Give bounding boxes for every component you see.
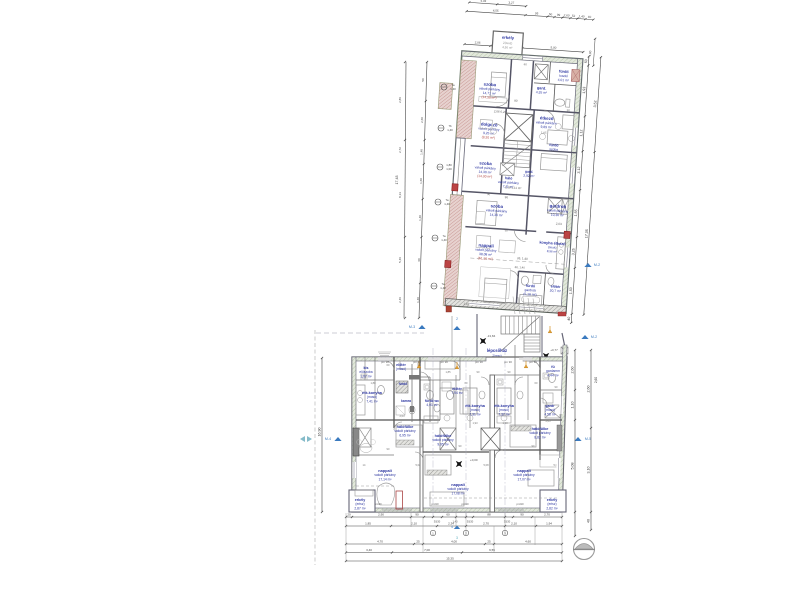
svg-text:pm 90: pm 90 <box>440 360 448 364</box>
svg-text:1,60: 1,60 <box>419 178 423 184</box>
svg-text:1,40: 1,40 <box>447 128 453 132</box>
svg-text:1,40: 1,40 <box>441 238 447 242</box>
svg-text:+0,77: +0,77 <box>550 348 558 352</box>
svg-text:pm90: pm90 <box>375 502 382 506</box>
svg-text:15,35: 15,35 <box>446 557 454 561</box>
svg-text:pm 90: pm 90 <box>475 360 483 364</box>
svg-text:3,27: 3,27 <box>508 0 514 4</box>
svg-text:20,7 m²: 20,7 m² <box>550 289 562 294</box>
svg-text:60: 60 <box>417 258 421 262</box>
svg-text:9,89 m²: 9,89 m² <box>540 125 552 130</box>
svg-text:4,50 m²: 4,50 m² <box>502 45 512 50</box>
svg-text:90: 90 <box>505 195 509 199</box>
svg-text:30|30: 30|30 <box>467 520 474 524</box>
svg-text:52: 52 <box>572 14 576 18</box>
svg-text:4,03: 4,03 <box>480 0 486 3</box>
svg-text:4,00: 4,00 <box>451 540 457 544</box>
svg-text:2,60: 2,60 <box>594 377 598 383</box>
svg-text:5,08: 5,08 <box>483 463 489 467</box>
svg-text:1,85: 1,85 <box>365 522 371 526</box>
svg-text:2,92 m²: 2,92 m² <box>523 174 535 179</box>
svg-text:90: 90 <box>520 513 524 517</box>
svg-text:1,87 m²: 1,87 m² <box>360 374 372 378</box>
svg-text:fürdő: fürdő <box>399 382 408 386</box>
svg-text:8,13: 8,13 <box>398 192 402 198</box>
svg-text:4: 4 <box>451 525 453 529</box>
svg-text:pm 90: pm 90 <box>413 360 421 364</box>
svg-text:1,12: 1,12 <box>579 129 583 136</box>
svg-text:50: 50 <box>549 12 553 16</box>
svg-text:pm 90: pm 90 <box>529 360 537 364</box>
svg-text:2,10: 2,10 <box>511 522 517 526</box>
svg-text:2,03: 2,03 <box>556 222 562 226</box>
svg-text:17,05: 17,05 <box>584 229 589 238</box>
svg-text:2,82 m²: 2,82 m² <box>546 506 558 510</box>
svg-text:7,00: 7,00 <box>424 548 430 552</box>
svg-text:2,03: 2,03 <box>399 414 405 418</box>
svg-text:1,50: 1,50 <box>569 287 573 294</box>
svg-text:30|30: 30|30 <box>434 520 441 524</box>
svg-text:2,72: 2,72 <box>398 147 402 153</box>
svg-text:4,44 m²: 4,44 m² <box>547 373 559 377</box>
svg-text:7,94 m²: 7,94 m² <box>451 391 463 395</box>
svg-text:99: 99 <box>557 13 561 17</box>
svg-text:6,95 m²: 6,95 m² <box>399 433 411 437</box>
svg-text:40: 40 <box>567 317 571 321</box>
svg-text:pm 90: pm 90 <box>381 360 389 364</box>
svg-text:1,40: 1,40 <box>440 286 446 290</box>
svg-text:2,87 m²: 2,87 m² <box>354 506 366 510</box>
svg-text:2,90: 2,90 <box>378 513 384 517</box>
svg-text:2,06 6,20: 2,06 6,20 <box>494 109 507 114</box>
svg-text:25: 25 <box>416 540 420 544</box>
svg-text:7,37 m²: 7,37 m² <box>498 412 510 416</box>
svg-text:2,10: 2,10 <box>411 522 417 526</box>
svg-text:2,60: 2,60 <box>420 117 424 123</box>
svg-text:pm90: pm90 <box>517 502 524 506</box>
svg-text:1,93: 1,93 <box>582 87 586 94</box>
svg-text:4,01 m²: 4,01 m² <box>558 78 570 83</box>
svg-text:1,55: 1,55 <box>574 209 578 216</box>
svg-text:+0,00: +0,00 <box>470 458 478 462</box>
svg-text:35, 1,40: 35, 1,40 <box>517 256 528 261</box>
svg-text:kamra: kamra <box>401 399 411 403</box>
svg-text:3,10: 3,10 <box>587 467 591 474</box>
svg-text:pm90: pm90 <box>432 502 439 506</box>
svg-text:2,60: 2,60 <box>564 13 570 17</box>
svg-text:60: 60 <box>446 513 450 517</box>
svg-text:M-3: M-3 <box>409 325 415 329</box>
svg-text:4,35 m²: 4,35 m² <box>536 90 548 95</box>
svg-text:17,08 m²: 17,08 m² <box>451 491 465 495</box>
svg-text:pm 90: pm 90 <box>504 360 512 364</box>
svg-text:4,58 m²: 4,58 m² <box>544 412 556 416</box>
svg-text:szoba: szoba <box>549 147 558 152</box>
svg-text:4,60: 4,60 <box>525 540 531 544</box>
svg-text:1,40: 1,40 <box>418 215 422 221</box>
svg-text:40: 40 <box>587 519 591 523</box>
svg-text:9,95 m²: 9,95 m² <box>437 442 449 446</box>
svg-text:5,08: 5,08 <box>571 463 575 470</box>
svg-text:9,55: 9,55 <box>489 548 495 552</box>
svg-text:1,10: 1,10 <box>463 302 469 306</box>
svg-text:1,85: 1,85 <box>541 130 547 134</box>
svg-text:1,93: 1,93 <box>472 421 478 425</box>
svg-text:1,40: 1,40 <box>579 14 585 18</box>
svg-text:50: 50 <box>584 59 588 63</box>
svg-text:4,70: 4,70 <box>377 540 383 544</box>
svg-text:8,96 m²: 8,96 m² <box>547 249 557 254</box>
svg-text:1,40: 1,40 <box>444 202 450 206</box>
svg-text:8,82 m²: 8,82 m² <box>534 435 546 439</box>
svg-text:1,93: 1,93 <box>502 421 508 425</box>
svg-text:1,85: 1,85 <box>445 370 451 374</box>
svg-text:M-2: M-2 <box>594 263 600 267</box>
svg-text:7,41 m²: 7,41 m² <box>366 399 378 403</box>
svg-text:5,00: 5,00 <box>550 45 556 49</box>
svg-text:2,86: 2,86 <box>398 97 402 103</box>
svg-text:1,00: 1,00 <box>588 50 592 56</box>
svg-text:4,55: 4,55 <box>493 8 499 12</box>
svg-text:1,48: 1,48 <box>420 149 424 155</box>
svg-text:M-4: M-4 <box>325 437 331 441</box>
svg-text:2,06: 2,06 <box>475 40 481 44</box>
svg-text:erkély: erkély <box>502 35 515 41</box>
svg-text:3,12: 3,12 <box>577 166 581 173</box>
svg-text:17,14 m²: 17,14 m² <box>378 477 392 481</box>
svg-text:7,31 m²: 7,31 m² <box>469 412 481 416</box>
svg-text:40: 40 <box>588 15 592 19</box>
svg-text:50: 50 <box>421 78 425 82</box>
svg-text:3,25: 3,25 <box>571 248 575 255</box>
svg-text:2,46: 2,46 <box>398 297 402 303</box>
svg-text:3,40: 3,40 <box>366 548 372 552</box>
svg-text:2,70: 2,70 <box>544 513 550 517</box>
svg-text:90: 90 <box>514 99 518 103</box>
svg-text:(mosó): (mosó) <box>396 367 406 371</box>
svg-text:lépcsőház: lépcsőház <box>487 348 507 353</box>
svg-text:1,10: 1,10 <box>571 402 575 409</box>
svg-text:5,46: 5,46 <box>398 257 402 263</box>
svg-text:2,60: 2,60 <box>571 367 575 374</box>
svg-text:17,48: 17,48 <box>395 176 399 185</box>
svg-text:1,40: 1,40 <box>450 87 456 91</box>
svg-text:20: 20 <box>347 513 351 517</box>
svg-text:17,07 m²: 17,07 m² <box>517 477 531 481</box>
svg-text:pm90: pm90 <box>462 502 469 506</box>
svg-text:M-5: M-5 <box>585 437 591 441</box>
svg-text:90: 90 <box>415 513 419 517</box>
svg-text:1,40: 1,40 <box>416 297 420 303</box>
svg-text:88: 88 <box>487 513 491 517</box>
svg-text:1,00: 1,00 <box>446 167 452 171</box>
svg-text:3,52: 3,52 <box>593 100 597 107</box>
svg-text:2: 2 <box>456 317 458 321</box>
svg-text:16,90: 16,90 <box>318 428 322 437</box>
svg-text:-13,84: -13,84 <box>487 334 496 338</box>
svg-text:4,01 m²: 4,01 m² <box>426 403 438 407</box>
svg-text:M-2: M-2 <box>591 335 597 339</box>
svg-text:95: 95 <box>535 11 539 15</box>
svg-text:88, 1,40: 88, 1,40 <box>515 265 526 270</box>
svg-text:2,03: 2,03 <box>545 419 551 423</box>
svg-text:5,08: 5,08 <box>415 463 421 467</box>
svg-text:2,60: 2,60 <box>587 386 591 393</box>
svg-text:25: 25 <box>487 540 491 544</box>
svg-text:2,70: 2,70 <box>483 522 489 526</box>
svg-text:1,88: 1,88 <box>370 381 376 385</box>
svg-text:1,94: 1,94 <box>546 522 552 526</box>
